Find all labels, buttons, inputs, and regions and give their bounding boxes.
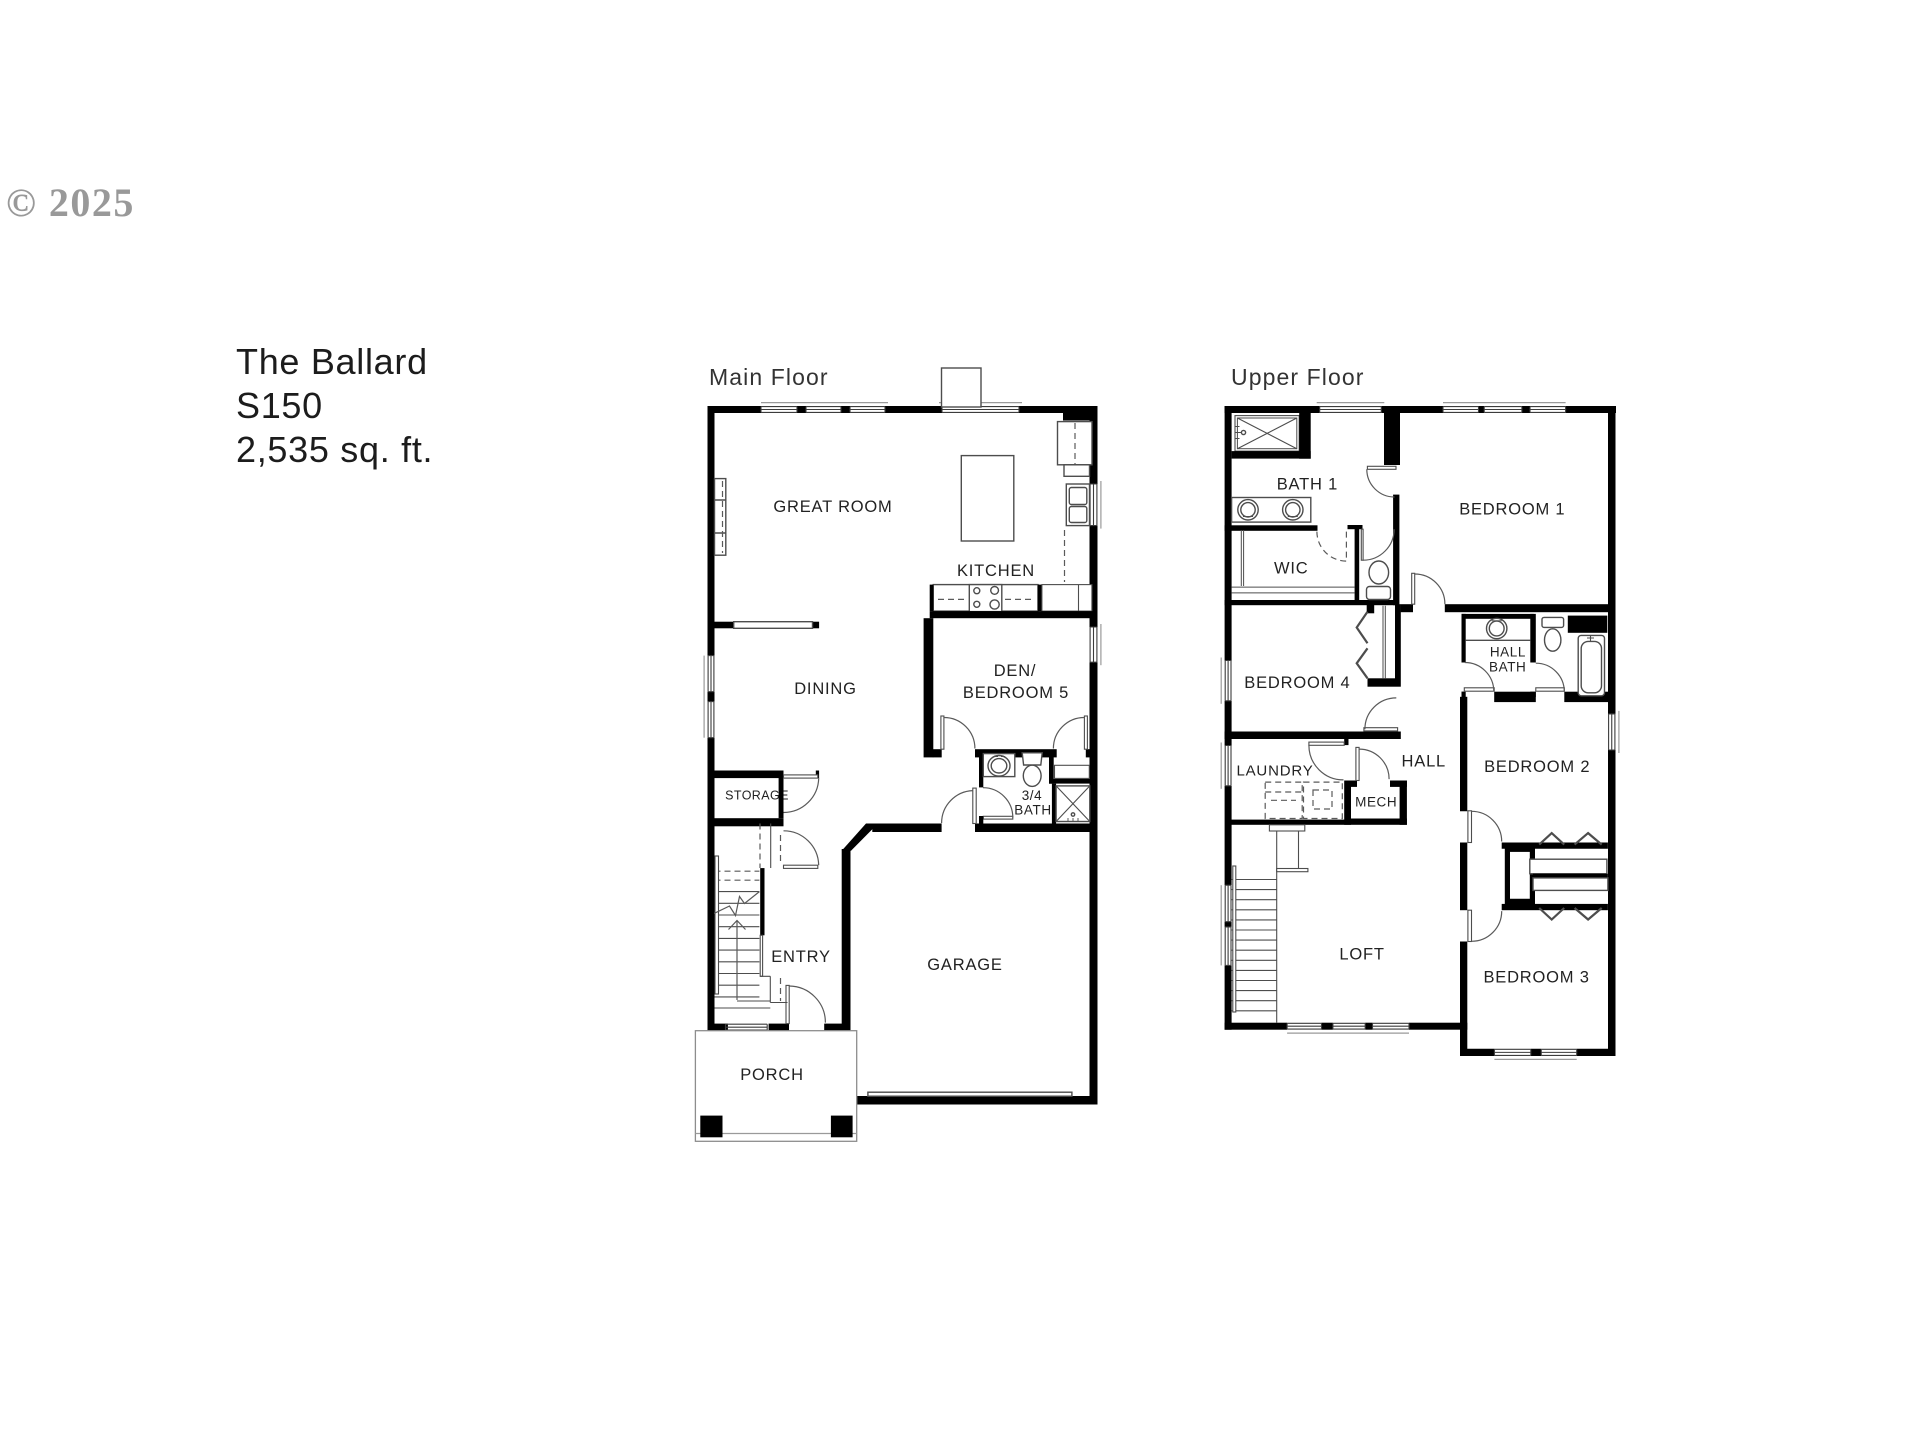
svg-text:HALL: HALL (1490, 645, 1526, 660)
svg-text:LOFT: LOFT (1339, 946, 1384, 964)
svg-text:Upper Floor: Upper Floor (1231, 364, 1365, 390)
svg-text:KITCHEN: KITCHEN (957, 562, 1035, 580)
svg-text:The Ballard: The Ballard (236, 341, 428, 382)
svg-text:BEDROOM 4: BEDROOM 4 (1244, 674, 1350, 692)
svg-text:BEDROOM 5: BEDROOM 5 (963, 684, 1069, 702)
svg-text:MECH: MECH (1355, 795, 1397, 810)
svg-text:DINING: DINING (794, 680, 857, 698)
svg-text:3/4: 3/4 (1022, 788, 1043, 803)
svg-text:GREAT ROOM: GREAT ROOM (773, 498, 892, 516)
svg-text:DEN/: DEN/ (994, 662, 1037, 680)
svg-text:BEDROOM 1: BEDROOM 1 (1459, 501, 1565, 519)
svg-text:LAUNDRY: LAUNDRY (1236, 762, 1313, 779)
svg-text:BATH 1: BATH 1 (1277, 476, 1338, 494)
svg-text:PORCH: PORCH (740, 1066, 804, 1084)
svg-text:WIC: WIC (1274, 560, 1308, 578)
svg-text:ENTRY: ENTRY (771, 948, 831, 966)
svg-text:2,535 sq. ft.: 2,535 sq. ft. (236, 429, 433, 470)
svg-text:GARAGE: GARAGE (927, 956, 1002, 974)
svg-text:BEDROOM 3: BEDROOM 3 (1483, 969, 1589, 987)
svg-text:Main Floor: Main Floor (709, 364, 829, 390)
svg-text:BATH: BATH (1489, 660, 1526, 675)
svg-text:© 2025: © 2025 (6, 180, 135, 225)
svg-text:BATH: BATH (1014, 803, 1051, 818)
svg-text:BEDROOM 2: BEDROOM 2 (1484, 758, 1590, 776)
svg-text:HALL: HALL (1402, 752, 1446, 770)
svg-text:S150: S150 (236, 385, 323, 426)
